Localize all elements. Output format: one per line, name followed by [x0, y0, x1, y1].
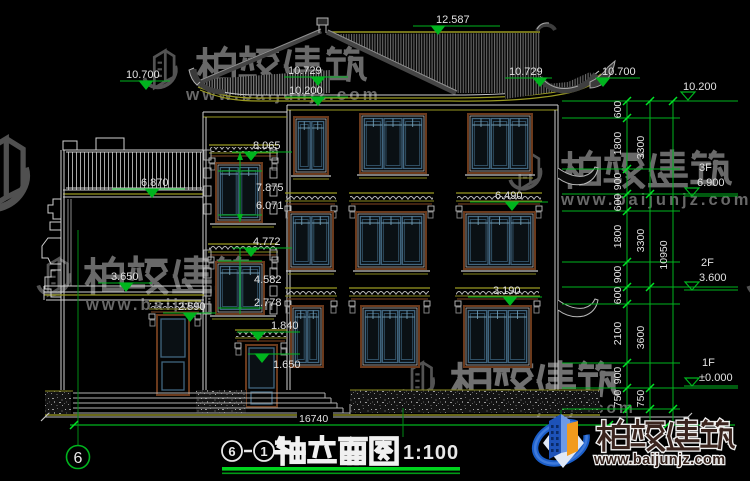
svg-text:10950: 10950: [658, 240, 670, 269]
svg-text:6.870: 6.870: [141, 177, 169, 189]
svg-text:2.778: 2.778: [254, 297, 282, 309]
svg-text:6.071: 6.071: [256, 200, 284, 212]
svg-text:6: 6: [228, 444, 235, 459]
svg-text:www.baijunjz.com: www.baijunjz.com: [593, 452, 726, 468]
svg-text:10.729: 10.729: [509, 66, 543, 78]
svg-text:4.582: 4.582: [254, 274, 282, 286]
svg-text:2100: 2100: [612, 322, 624, 346]
svg-text:16740: 16740: [299, 413, 328, 425]
svg-text:3.600: 3.600: [699, 272, 727, 284]
svg-text:3.650: 3.650: [111, 271, 139, 283]
svg-text:1800: 1800: [612, 225, 624, 249]
svg-text:3600: 3600: [635, 326, 647, 350]
svg-text:3300: 3300: [635, 136, 647, 160]
svg-text:900: 900: [612, 173, 624, 191]
svg-text:7.875: 7.875: [256, 182, 284, 194]
svg-text:12.587: 12.587: [436, 14, 470, 26]
svg-text:600: 600: [612, 101, 624, 119]
svg-text:4.772: 4.772: [253, 236, 281, 248]
svg-text:1.650: 1.650: [273, 359, 301, 371]
svg-text:3300: 3300: [635, 229, 647, 253]
svg-text:10.700: 10.700: [602, 66, 636, 78]
svg-text:600: 600: [612, 287, 624, 305]
svg-text:750: 750: [612, 390, 624, 408]
svg-text:1.840: 1.840: [271, 320, 299, 332]
svg-text:1:100: 1:100: [403, 442, 459, 464]
svg-text:6: 6: [74, 450, 83, 467]
svg-text:8.065: 8.065: [253, 140, 281, 152]
svg-text:600: 600: [612, 194, 624, 212]
svg-text:±0.000: ±0.000: [699, 372, 733, 384]
svg-text:2.590: 2.590: [178, 301, 206, 313]
svg-text:10.700: 10.700: [126, 69, 160, 81]
svg-text:6.900: 6.900: [697, 177, 725, 189]
svg-text:750: 750: [635, 390, 647, 408]
svg-text:10.200: 10.200: [683, 81, 717, 93]
svg-text:900: 900: [612, 266, 624, 284]
svg-text:3F: 3F: [699, 162, 712, 174]
svg-text:1: 1: [260, 444, 267, 459]
svg-text:1F: 1F: [702, 357, 715, 369]
svg-text:2F: 2F: [701, 257, 714, 269]
svg-text:1800: 1800: [612, 132, 624, 156]
svg-text:10.729: 10.729: [288, 65, 322, 77]
svg-text:10.200: 10.200: [289, 85, 323, 97]
svg-text:3.190: 3.190: [493, 285, 521, 297]
svg-text:900: 900: [612, 367, 624, 385]
svg-text:6.490: 6.490: [495, 190, 523, 202]
